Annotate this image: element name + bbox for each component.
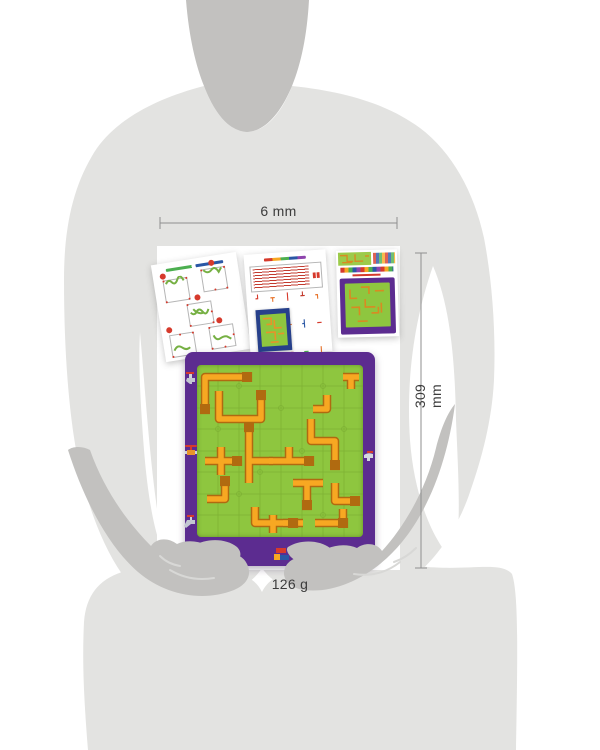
weight-label: 126 g (230, 576, 350, 592)
dimension-lines (0, 0, 600, 750)
product-scale-illustration: ▮▮ ┛ ┳ ┃ ┻ ┓ ╋ ┣ ┗ ┫ ━ ┏ ┳ ┃ ┛ ╸ ╵ (0, 0, 600, 750)
height-dimension-label: 309 mm (412, 371, 444, 421)
width-dimension-label: 6 mm (160, 203, 397, 219)
